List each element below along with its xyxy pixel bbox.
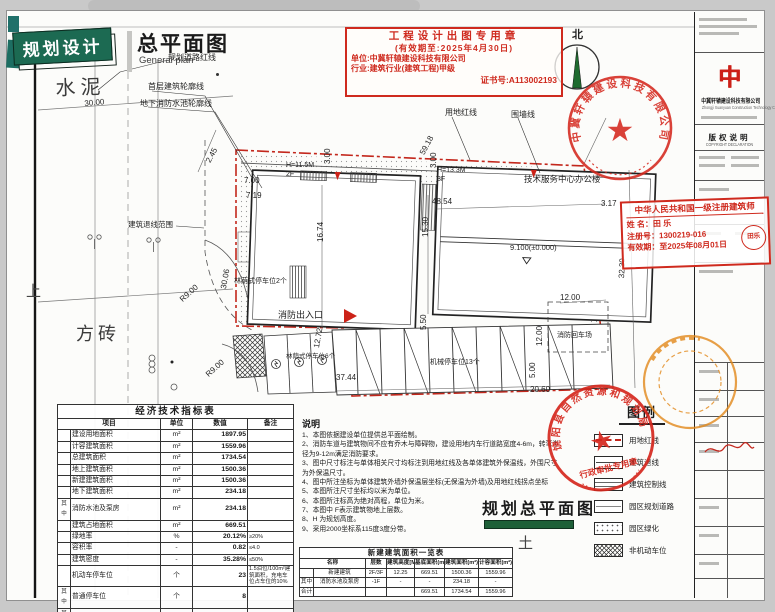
dim-15.30: 15.30 <box>421 217 430 237</box>
table-cell: -1F <box>366 578 387 588</box>
title-divider <box>127 31 132 72</box>
dim-5.50: 5.50 <box>419 314 428 330</box>
valid-label: 有效期： <box>627 243 659 253</box>
titleblock-divider <box>695 470 764 471</box>
building-height-label: H=13.3M <box>437 167 466 174</box>
titleblock-divider <box>695 498 764 499</box>
titleblock-text-bar <box>699 156 725 159</box>
table-cell: ≤50% <box>248 554 294 565</box>
table-cell <box>387 587 415 597</box>
first-floor-outline-label: 首层建筑轮廓线 <box>148 81 204 92</box>
fire-turnaround-label: 消防回车场 <box>557 330 592 340</box>
table-cell: 合计 <box>300 587 314 597</box>
table-row: 建筑密度-35.28%≤50% <box>58 554 294 565</box>
titleblock-divider <box>695 442 764 443</box>
table-row: 地下建筑面积m²234.18 <box>58 487 294 498</box>
dim-7.19: 7.19 <box>246 191 262 200</box>
legend-label: 建筑退线 <box>629 457 659 468</box>
table-cell <box>248 430 294 441</box>
dim-7.00: 7.00 <box>244 176 260 185</box>
titleblock-divider <box>695 578 764 579</box>
legend-item: 建筑退线 <box>594 456 690 469</box>
titleblock-divider <box>695 362 764 363</box>
table-cell: 计容建筑面积 <box>71 441 161 452</box>
table-cell <box>366 587 387 597</box>
table-cell <box>248 498 294 520</box>
dim-3.00: 3.00 <box>323 148 332 164</box>
title-block: 中 中冀轩辕建设科技有限公司 Zhongji Xuanyuan Construc… <box>694 12 764 598</box>
dim-12.00: 12.00 <box>535 326 544 346</box>
table-cell: 其中 <box>300 578 314 588</box>
legend-label: 非机动车位 <box>629 545 667 556</box>
titleblock-text-bar <box>731 156 759 159</box>
table-cell: 新建建筑面积 <box>71 476 161 487</box>
soil-mark-label: 上 <box>26 280 41 301</box>
legend-label: 用地红线 <box>629 435 659 446</box>
table-cell: 234.18 <box>445 578 479 588</box>
table-cell <box>248 608 294 612</box>
north-label: 北 <box>572 26 583 42</box>
table-cell <box>58 430 71 441</box>
table-cell: - <box>161 554 193 565</box>
table-row: 新建建筑面积m²1500.36 <box>58 476 294 487</box>
table-cell: % <box>161 532 193 543</box>
control-line-swatch-icon <box>594 478 623 491</box>
table-row: 容积率-0.82≤4.0 <box>58 543 294 554</box>
table-cell: 23 <box>193 566 248 587</box>
table-cell: 地上建筑面积 <box>71 464 161 475</box>
titleblock-divider <box>695 150 764 151</box>
note-item: 3、图中尺寸标注与单体相关尺寸均标注到用地红线及各单体建筑外保温线，外围尺寸为外… <box>302 459 560 478</box>
stamp-title: 工程设计出图专用章 <box>351 30 557 43</box>
level-mark-label: 9.100(±0.000) <box>510 243 557 252</box>
shaded-parking-2-label: 林荫式停车位2个 <box>234 276 287 286</box>
table-row: 其中消防水池及泵房-1F--234.18- <box>300 578 513 588</box>
setback-swatch-icon <box>594 456 623 469</box>
nbt-header-name: 名称 <box>300 559 366 569</box>
table-cell <box>58 520 71 531</box>
table-cell: 8 <box>193 586 248 608</box>
legend-label: 园区规划道路 <box>629 501 674 512</box>
fire-entrance-label: 消防出入口 <box>278 308 323 321</box>
note-item: 9、采用2000坐标系115度3度分带。 <box>302 525 560 534</box>
table-row: 其中普通停车位个8 <box>58 586 294 608</box>
table-cell <box>58 453 71 464</box>
table-cell: 绿地率 <box>71 532 161 543</box>
table-row: 计容建筑面积m²1559.96 <box>58 441 294 452</box>
table-cell: 669.51 <box>415 587 445 597</box>
architect-validity: 至2025年08月01日 <box>659 240 727 251</box>
table-cell <box>58 566 71 587</box>
table-row: 新建建筑2F/3F12.25669.511500.361559.96 <box>300 568 513 578</box>
table-cell: 1559.96 <box>479 568 513 578</box>
legend: 图例 用地红线 建筑退线 建筑控制线 园区规划道路 园区绿化 非机动车位 <box>594 402 690 557</box>
titleblock-text-bar <box>699 32 739 35</box>
table-cell: 1559.96 <box>479 587 513 597</box>
company-name: 中冀轩辕建设科技有限公司 <box>701 96 758 105</box>
titleblock-text-bar <box>699 270 733 273</box>
table-cell: 个 <box>161 608 193 612</box>
new-building-area-table: 新建建筑面积一览表 名称 层数 建筑高度[M] 基底面积(m²) 建筑面积(m²… <box>299 547 512 597</box>
table-cell: 个 <box>161 566 193 587</box>
econ-header-unit: 单位 <box>161 419 193 430</box>
table-cell: m² <box>161 453 193 464</box>
table-row: 合计669.511734.541559.96 <box>300 587 513 597</box>
legend-item: 建筑控制线 <box>594 478 690 491</box>
table-cell: ≤4.0 <box>248 543 294 554</box>
table-cell: 20.12% <box>193 532 248 543</box>
table-cell: 普通停车位 <box>71 586 161 608</box>
stamp-industry: 行业:建筑行业(建筑工程)甲级 <box>351 64 557 74</box>
econ-table-body: 建设用地面积m²1897.95计容建筑面积m²1559.96总建筑面积m²173… <box>58 430 294 612</box>
table-cell: 234.18 <box>193 498 248 520</box>
nbt-table-body: 新建建筑2F/3F12.25669.511500.361559.96其中消防水池… <box>300 568 513 597</box>
table-cell: 新建建筑 <box>314 568 366 578</box>
note-item: 8、H 为规划高度。 <box>302 515 560 524</box>
titleblock-text-bar <box>699 370 719 373</box>
table-cell: m² <box>161 520 193 531</box>
table-cell: m² <box>161 476 193 487</box>
company-logo: 中 <box>695 58 764 92</box>
brick-surface-label: 方砖 <box>76 320 120 346</box>
table-cell <box>58 543 71 554</box>
titleblock-divider <box>695 52 764 53</box>
titleblock-text-bar <box>699 450 719 453</box>
wall-line-label: 围墙线 <box>511 109 535 120</box>
table-cell <box>248 441 294 452</box>
dim-3.00: 3.00 <box>429 152 438 168</box>
table-cell: 其中 <box>58 586 71 608</box>
table-cell: m² <box>161 498 193 520</box>
architect-reg-no: 1300219-016 <box>659 229 706 240</box>
titleblock-text-bar <box>699 424 719 427</box>
table-cell: 建筑密度 <box>71 554 161 565</box>
table-cell: 容积率 <box>71 543 161 554</box>
legend-label: 建筑控制线 <box>629 479 667 490</box>
titleblock-text-bar <box>699 506 719 509</box>
soil-mark-label: 土 <box>518 532 533 553</box>
table-cell: 0.82 <box>193 543 248 554</box>
scan-artifact <box>8 16 19 32</box>
table-cell: 1734.54 <box>193 453 248 464</box>
table-cell <box>248 487 294 498</box>
table-row: 地上建筑面积m²1500.36 <box>58 464 294 475</box>
note-item: 6、本图所注标高为绝对高程，单位为米。 <box>302 497 560 506</box>
table-cell: - <box>387 578 415 588</box>
table-row: 绿地率%20.12%≥20% <box>58 532 294 543</box>
econ-header-note: 备注 <box>248 419 294 430</box>
table-cell <box>58 554 71 565</box>
titleblock-text-bar <box>699 18 747 21</box>
office-building-label: 技术服务中心办公楼 <box>524 173 601 185</box>
table-cell: 1734.54 <box>445 587 479 597</box>
dim-37.44: 37.44 <box>336 373 356 382</box>
building-floors-label: 3F <box>437 176 445 183</box>
stamp-cert-no: 证书号:A113002193 <box>351 75 557 86</box>
table-cell: 其中 <box>58 498 71 520</box>
legend-item: 非机动车位 <box>594 544 690 557</box>
notes-title: 说明 <box>302 417 560 430</box>
cement-surface-label: 水泥 <box>55 70 106 101</box>
table-row: 其中消防水池及泵房m²234.18 <box>58 498 294 520</box>
table-cell <box>58 532 71 543</box>
titleblock-divider <box>695 554 764 555</box>
table-cell: 机动车停车位 <box>71 566 161 587</box>
table-row: 总建筑面积m²1734.54 <box>58 453 294 464</box>
table-cell: 建设用地面积 <box>71 430 161 441</box>
table-cell: ≥20% <box>248 532 294 543</box>
table-cell <box>58 441 71 452</box>
reg-label: 注册号： <box>627 231 659 241</box>
table-cell: 其中 <box>58 608 71 612</box>
titleblock-divider <box>695 180 764 181</box>
building-height-label: H=11.5M <box>286 162 314 169</box>
table-cell <box>58 487 71 498</box>
titleblock-text-bar <box>731 164 759 167</box>
economic-indicators-table: 经济技术指标表 项目 单位 数值 备注 建设用地面积m²1897.95计容建筑面… <box>57 404 293 612</box>
table-cell: 地下建筑面积 <box>71 487 161 498</box>
table-cell: - <box>415 578 445 588</box>
table-cell <box>248 464 294 475</box>
dim-3.17: 3.17 <box>601 199 617 208</box>
fire-pool-outline-label: 地下消防水池轮廓线 <box>140 98 212 109</box>
table-cell: 15 <box>193 608 248 612</box>
legend-title: 图例 <box>619 402 665 425</box>
table-cell: - <box>161 543 193 554</box>
dim-16.74: 16.74 <box>316 222 325 242</box>
redline-swatch-icon <box>594 434 623 447</box>
design-permit-stamp: 工程设计出图专用章 (有效期至:2025年4月30日) 单位:中冀轩辕建设科技有… <box>345 27 563 97</box>
table-cell: 1897.95 <box>193 430 248 441</box>
copyright-heading-en: COPYRIGHT DECLARATION <box>700 142 759 147</box>
table-cell: 669.51 <box>193 520 248 531</box>
titleblock-divider <box>695 124 764 125</box>
stamp-validity: (有效期至:2025年4月30日) <box>351 43 557 54</box>
econ-table-title: 经济技术指标表 <box>58 405 294 419</box>
econ-header-item: 项目 <box>58 419 161 430</box>
titleblock-text-bar <box>699 534 719 537</box>
table-cell: 669.51 <box>415 568 445 578</box>
bicycle-swatch-icon <box>594 544 623 557</box>
greenery-swatch-icon <box>594 522 623 535</box>
architect-stamp: 中华人民共和国一级注册建筑师 姓 名：田 乐 注册号：1300219-016 有… <box>620 196 771 269</box>
table-cell: 消防水池及泵房 <box>314 578 366 588</box>
titleblock-text-bar <box>699 188 729 191</box>
table-cell: 机械车位 <box>71 608 161 612</box>
table-cell: m² <box>161 441 193 452</box>
table-cell: 35.28% <box>193 554 248 565</box>
shaded-parking-6-label: 林荫式停车位6个 <box>286 350 335 360</box>
table-cell: 1559.96 <box>193 441 248 452</box>
table-cell: 12.25 <box>387 568 415 578</box>
stamp-unit: 单位:中冀轩辕建设科技有限公司 <box>351 54 557 64</box>
table-cell <box>248 586 294 608</box>
dot-mark <box>216 73 219 76</box>
dim-20.60: 20.60 <box>530 385 550 394</box>
setback-range-label: 建筑退线范围 <box>128 219 173 230</box>
titleblock-text-bar <box>699 164 725 167</box>
drawing-page: 规划设计 总平面图 General plan 工程设计出图专用章 (有效期至:2… <box>0 0 775 612</box>
table-cell: 2F/3F <box>366 568 387 578</box>
nbt-header-footprint: 基底面积(m²) <box>415 559 445 569</box>
redline-top-label: 用地红线 <box>445 107 477 118</box>
note-item: 5、本图所注尺寸坐标均以米为单位。 <box>302 487 560 496</box>
table-cell: 建筑占地面积 <box>71 520 161 531</box>
table-cell <box>300 568 314 578</box>
table-cell <box>58 464 71 475</box>
titleblock-text-bar <box>701 116 757 119</box>
table-cell: 1.5泊位/100m²建筑面积，充电车位占车位的10% <box>248 566 294 587</box>
nbt-title: 新建建筑面积一览表 <box>300 548 513 559</box>
table-cell <box>248 520 294 531</box>
table-cell: 个 <box>161 586 193 608</box>
table-cell: 1500.36 <box>193 464 248 475</box>
econ-header-value: 数值 <box>193 419 248 430</box>
titleblock-divider <box>695 526 764 527</box>
table-cell: 234.18 <box>193 487 248 498</box>
road-swatch-icon <box>594 500 623 513</box>
note-item: 1、本图依据建设单位提供总平面绘制。 <box>302 431 560 440</box>
table-row: 机动车停车位个231.5泊位/100m²建筑面积，充电车位占车位的10% <box>58 566 294 587</box>
company-name-en: Zhongji Xuanyuan Construction Technology… <box>702 105 757 110</box>
titleblock-text-bar <box>699 562 719 565</box>
building-floors-label: 2F <box>286 171 294 178</box>
table-cell: 消防水池及泵房 <box>71 498 161 520</box>
nbt-header-height: 建筑高度[M] <box>387 559 415 569</box>
table-row: 建筑占地面积m²669.51 <box>58 520 294 531</box>
nbt-header-area: 建筑面积(m²) <box>445 559 479 569</box>
table-cell: m² <box>161 464 193 475</box>
table-cell <box>58 476 71 487</box>
dim-12.00: 12.00 <box>560 293 580 302</box>
note-item: 7、本图中 F表示建筑物地上层数。 <box>302 506 560 515</box>
table-row: 建设用地面积m²1897.95 <box>58 430 294 441</box>
legend-item: 用地红线 <box>594 434 690 447</box>
nbt-header-floors: 层数 <box>366 559 387 569</box>
legend-item: 园区规划道路 <box>594 500 690 513</box>
table-cell: - <box>479 578 513 588</box>
table-cell: 1500.36 <box>193 476 248 487</box>
titleblock-text-bar <box>699 398 719 401</box>
note-item: 2、消防车道与建筑物间不应有乔木与障碍物，建设用地内车行道路宽度4-6m，转弯半… <box>302 440 560 459</box>
table-cell <box>248 476 294 487</box>
road-redline-label: 规划道路红线 <box>168 52 216 63</box>
name-label: 姓 名： <box>627 219 654 229</box>
titleblock-divider <box>695 416 764 417</box>
nbt-header-far-area: 计容面积(m²) <box>479 559 513 569</box>
table-cell <box>314 587 366 597</box>
table-cell: m² <box>161 430 193 441</box>
dim-5.00: 5.00 <box>528 362 537 378</box>
notes-block: 说明 1、本图依据建设单位提供总平面绘制。 2、消防车道与建筑物间不应有乔木与障… <box>302 417 560 534</box>
titleblock-text-bar <box>699 25 757 28</box>
titleblock-divider <box>695 390 764 391</box>
table-cell: 总建筑面积 <box>71 453 161 464</box>
legend-label: 园区绿化 <box>629 523 659 534</box>
note-item: 4、图中所注坐标为单体建筑外墙外保温层坐标(无保温为外墙)及用地红线拐点坐标 <box>302 478 560 487</box>
legend-item: 园区绿化 <box>594 522 690 535</box>
dim-48.54: 48.54 <box>432 197 452 206</box>
banner-planning-design: 规划设计 <box>12 27 113 65</box>
table-row: 其中机械车位个15 <box>58 608 294 612</box>
titleblock-column-line <box>727 362 728 598</box>
table-cell: 1500.36 <box>445 568 479 578</box>
architect-name: 田 乐 <box>653 219 672 229</box>
table-cell <box>248 453 294 464</box>
mechanical-parking-label: 机械停车位13个 <box>430 357 480 367</box>
table-cell: m² <box>161 487 193 498</box>
